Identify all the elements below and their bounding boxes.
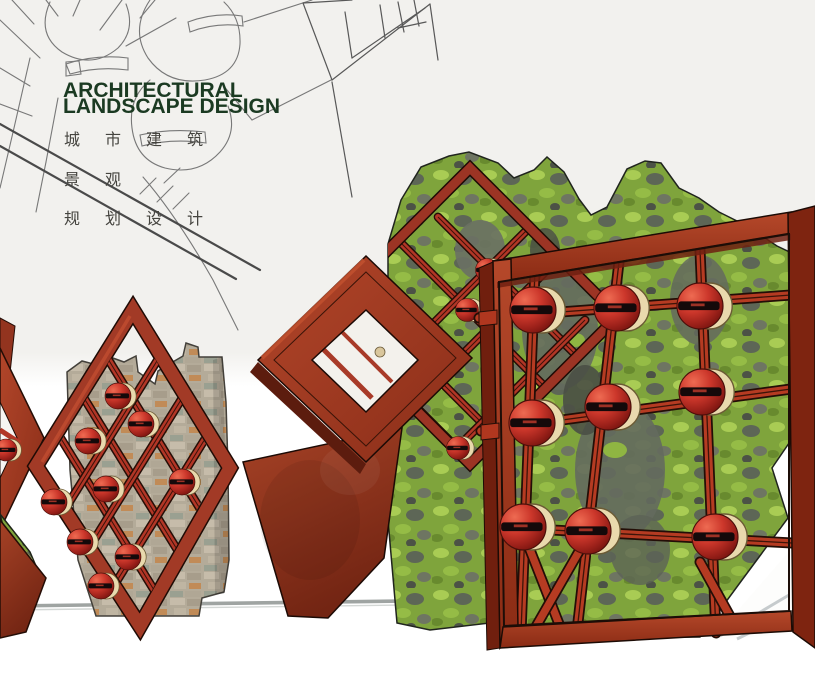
sculpture-diamond-lattice xyxy=(28,310,242,647)
subtitle-cn-landscape: 景观 xyxy=(64,166,146,190)
subtitle-cn-planning-design: 规划设计 xyxy=(64,205,228,229)
poster-canvas: ARCHITECTURAL LANDSCAPE DESIGN 城市建筑 景观 规… xyxy=(0,0,815,678)
poster-title-line2: LANDSCAPE DESIGN xyxy=(63,99,280,115)
pergola-sketch xyxy=(303,0,438,197)
title-block: ARCHITECTURAL LANDSCAPE DESIGN xyxy=(63,83,280,114)
subtitle-cn-city-architecture: 城市建筑 xyxy=(64,126,228,150)
sketch-plan-lines xyxy=(0,0,331,330)
